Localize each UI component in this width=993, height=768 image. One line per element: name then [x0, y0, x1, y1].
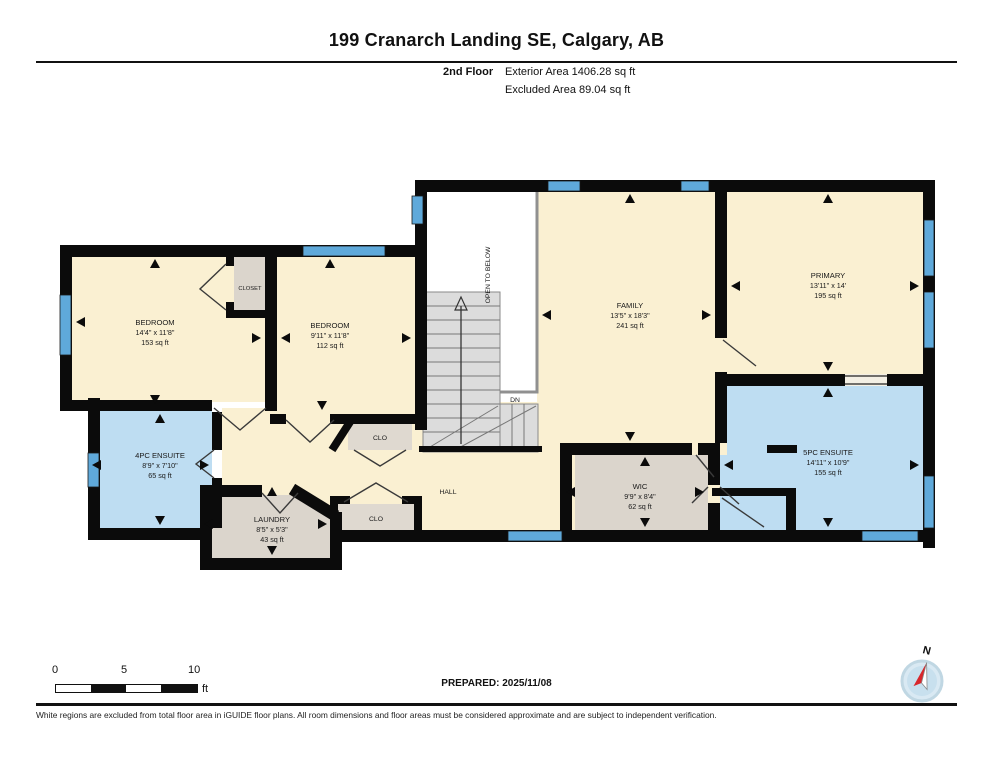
primary-area: 195 sq ft: [814, 291, 842, 300]
floor-plan-drawing: BEDROOM 14'4" x 11'8" 153 sq ft BEDROOM …: [0, 0, 993, 660]
floor-plan-page: 199 Cranarch Landing SE, Calgary, AB 2nd…: [0, 0, 993, 768]
hall-label: HALL: [439, 489, 456, 496]
stairs-dn-label: DN: [510, 397, 520, 404]
bedroom1-label: BEDROOM: [135, 318, 174, 327]
wic-label: WIC: [633, 482, 648, 491]
clo-lower-label: CLO: [369, 516, 383, 523]
primary-label: PRIMARY: [811, 271, 845, 280]
bedroom1-area: 153 sq ft: [141, 338, 169, 347]
laundry-dims: 8'5" x 5'3": [256, 525, 288, 534]
prepared-date: PREPARED: 2025/11/08: [0, 678, 993, 689]
primary-dims: 13'11" x 14': [810, 281, 847, 290]
family-area: 241 sq ft: [616, 321, 644, 330]
laundry-area: 43 sq ft: [260, 535, 284, 544]
footer-divider: [36, 703, 957, 706]
footer-disclaimer: White regions are excluded from total fl…: [36, 710, 966, 720]
scale-tick-5: 5: [121, 664, 127, 676]
closet-label: CLOSET: [238, 286, 262, 292]
ensuite4-area: 65 sq ft: [148, 471, 172, 480]
open-to-below-label: OPEN TO BELOW: [485, 246, 492, 303]
compass-icon: N: [888, 640, 958, 706]
wic-dims: 9'9" x 8'4": [624, 492, 656, 501]
wic-area: 62 sq ft: [628, 502, 652, 511]
ensuite4-dims: 8'9" x 7'10": [142, 461, 178, 470]
family-dims: 13'5" x 18'3": [610, 311, 650, 320]
clo-upper-label: CLO: [373, 435, 387, 442]
ensuite5-dims: 14'11" x 10'9": [807, 458, 850, 467]
ensuite5-label: 5PC ENSUITE: [803, 448, 853, 457]
compass-north-label: N: [921, 644, 932, 658]
scale-tick-0: 0: [52, 664, 58, 676]
ensuite5-area: 155 sq ft: [814, 468, 842, 477]
ensuite4-label: 4PC ENSUITE: [135, 451, 185, 460]
bedroom2-label: BEDROOM: [310, 321, 349, 330]
family-label: FAMILY: [617, 301, 643, 310]
laundry-label: LAUNDRY: [254, 515, 290, 524]
pocket-door: [845, 374, 887, 386]
bedroom2-dims: 9'11" x 11'8": [311, 331, 350, 340]
bedroom2-area: 112 sq ft: [316, 341, 343, 350]
bedroom1-dims: 14'4" x 11'8": [136, 328, 175, 337]
scale-tick-10: 10: [188, 664, 200, 676]
